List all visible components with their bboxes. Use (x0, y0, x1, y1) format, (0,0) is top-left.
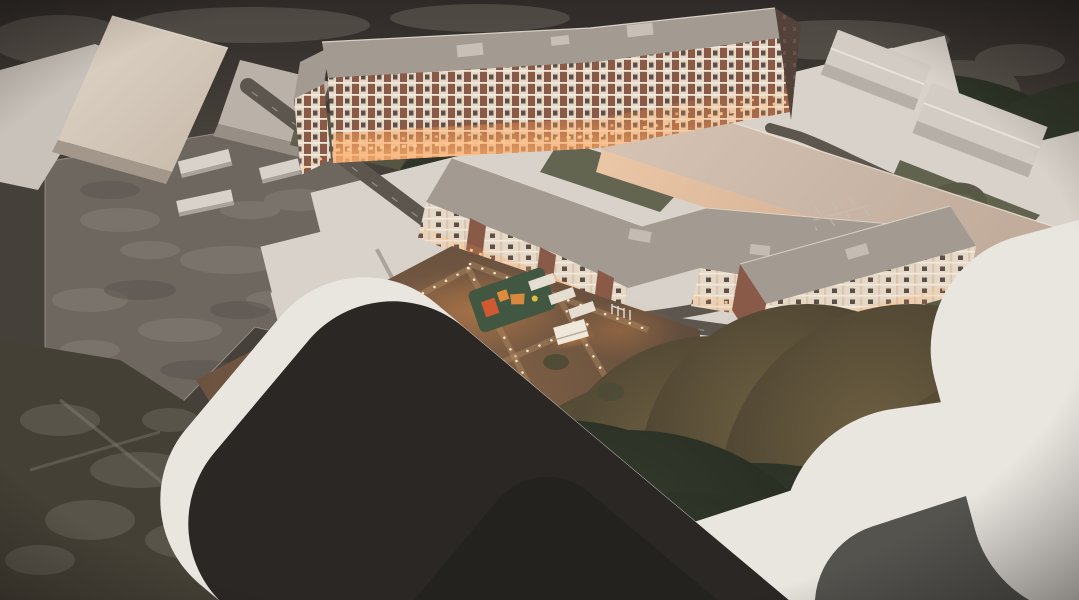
vignette (0, 0, 1079, 600)
render-stage: Residential complex — aerial 3D renderin… (0, 0, 1079, 600)
aerial-render: Residential complex — aerial 3D renderin… (0, 0, 1079, 600)
